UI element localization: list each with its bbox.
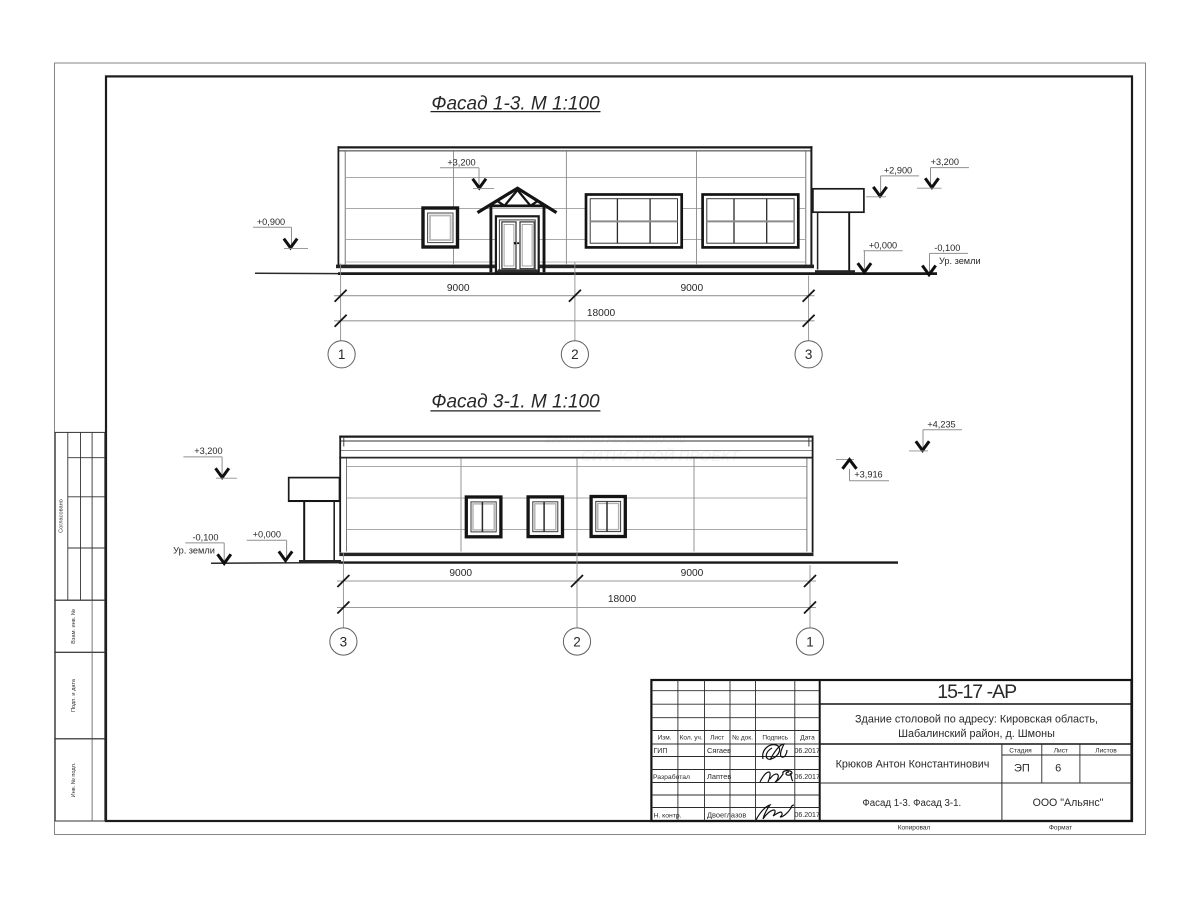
svg-text:СИТИСТРОЙ ПРОЕКТ: СИТИСТРОЙ ПРОЕКТ bbox=[581, 447, 741, 465]
svg-text:+3,916: +3,916 bbox=[854, 470, 882, 480]
svg-text:Лист: Лист bbox=[710, 735, 724, 742]
svg-text:Листов: Листов bbox=[1095, 748, 1117, 755]
svg-text:06.2017: 06.2017 bbox=[795, 774, 820, 781]
svg-text:Дата: Дата bbox=[800, 735, 815, 742]
svg-text:9000: 9000 bbox=[449, 568, 472, 579]
svg-text:9000: 9000 bbox=[680, 283, 703, 294]
svg-text:№ док.: № док. bbox=[732, 735, 753, 742]
svg-text:15-17 -АР: 15-17 -АР bbox=[937, 681, 1016, 703]
svg-text:ООО "Альянс": ООО "Альянс" bbox=[1033, 797, 1104, 809]
svg-text:2: 2 bbox=[571, 347, 579, 362]
svg-text:1: 1 bbox=[338, 347, 346, 362]
svg-text:Ур. земли: Ур. земли bbox=[939, 256, 981, 266]
svg-text:9000: 9000 bbox=[447, 283, 470, 294]
svg-text:Лаптев: Лаптев bbox=[707, 772, 731, 781]
svg-text:+0,000: +0,000 bbox=[869, 241, 897, 251]
svg-text:+2,900: +2,900 bbox=[884, 166, 912, 176]
svg-text:18000: 18000 bbox=[587, 308, 616, 319]
svg-text:2: 2 bbox=[573, 634, 581, 649]
svg-text:1: 1 bbox=[806, 634, 814, 649]
svg-text:Фасад 3-1. М 1:100: Фасад 3-1. М 1:100 bbox=[431, 392, 600, 413]
svg-text:Здание столовой по адресу: Кир: Здание столовой по адресу: Кировская обл… bbox=[855, 714, 1098, 726]
svg-text:Н. контр.: Н. контр. bbox=[654, 812, 682, 819]
svg-text:Сягаев: Сягаев bbox=[707, 746, 731, 755]
svg-text:Подпись: Подпись bbox=[762, 735, 788, 742]
svg-text:Стадия: Стадия bbox=[1009, 748, 1032, 755]
svg-text:Подп. и дата: Подп. и дата bbox=[71, 678, 77, 712]
svg-text:Копировал: Копировал bbox=[898, 825, 931, 832]
svg-text:Разработал: Разработал bbox=[653, 773, 690, 781]
svg-text:Двоеглазов: Двоеглазов bbox=[707, 810, 746, 819]
svg-text:Формат: Формат bbox=[1049, 825, 1072, 832]
svg-text:+0,000: +0,000 bbox=[253, 530, 281, 540]
svg-text:+4,235: +4,235 bbox=[927, 420, 955, 430]
svg-text:Взам. инв. №: Взам. инв. № bbox=[71, 609, 77, 644]
svg-text:6: 6 bbox=[1055, 763, 1061, 775]
svg-text:ГИП: ГИП bbox=[654, 748, 668, 755]
svg-text:3: 3 bbox=[340, 634, 348, 649]
svg-text:Согласовано: Согласовано bbox=[59, 499, 65, 533]
svg-text:+3,200: +3,200 bbox=[931, 157, 959, 167]
svg-text:+3,200: +3,200 bbox=[447, 158, 475, 168]
svg-text:ЭП: ЭП bbox=[1014, 763, 1030, 775]
svg-text:Инв. № подл.: Инв. № подл. bbox=[71, 762, 77, 797]
svg-text:-0,100: -0,100 bbox=[192, 533, 218, 543]
svg-text:Изм.: Изм. bbox=[658, 735, 672, 742]
svg-text:Ур. земли: Ур. земли bbox=[173, 545, 215, 555]
svg-text:Крюков Антон Константинович: Крюков Антон Константинович bbox=[836, 758, 990, 770]
svg-text:Шабалинский район, д. Шмоны: Шабалинский район, д. Шмоны bbox=[898, 728, 1055, 740]
svg-text:Фасад 1-3. Фасад 3-1.: Фасад 1-3. Фасад 3-1. bbox=[862, 798, 961, 809]
svg-text:-0,100: -0,100 bbox=[934, 243, 960, 253]
svg-text:+0,900: +0,900 bbox=[257, 217, 285, 227]
svg-text:9000: 9000 bbox=[681, 568, 704, 579]
svg-text:Кол. уч.: Кол. уч. bbox=[680, 735, 703, 742]
svg-text:06.2017: 06.2017 bbox=[795, 748, 820, 755]
svg-text:+3,200: +3,200 bbox=[194, 446, 222, 456]
svg-text:Лист: Лист bbox=[1054, 748, 1068, 755]
svg-text:18000: 18000 bbox=[608, 594, 637, 605]
svg-text:3: 3 bbox=[805, 347, 813, 362]
svg-text:06.2017: 06.2017 bbox=[795, 812, 820, 819]
